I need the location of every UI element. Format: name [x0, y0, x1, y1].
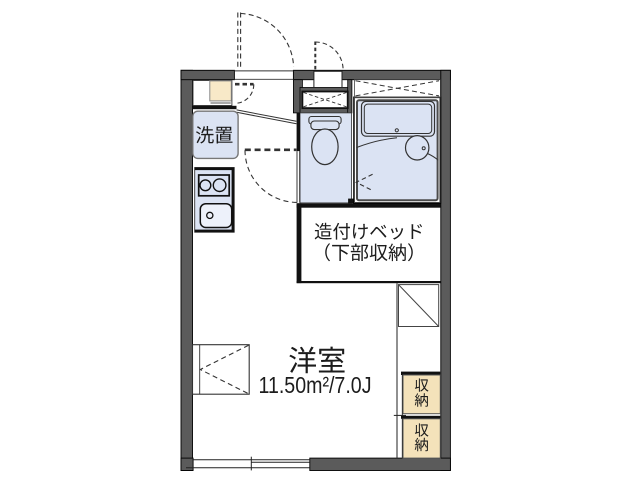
svg-text:11.50m²/7.0J: 11.50m²/7.0J — [259, 372, 372, 398]
